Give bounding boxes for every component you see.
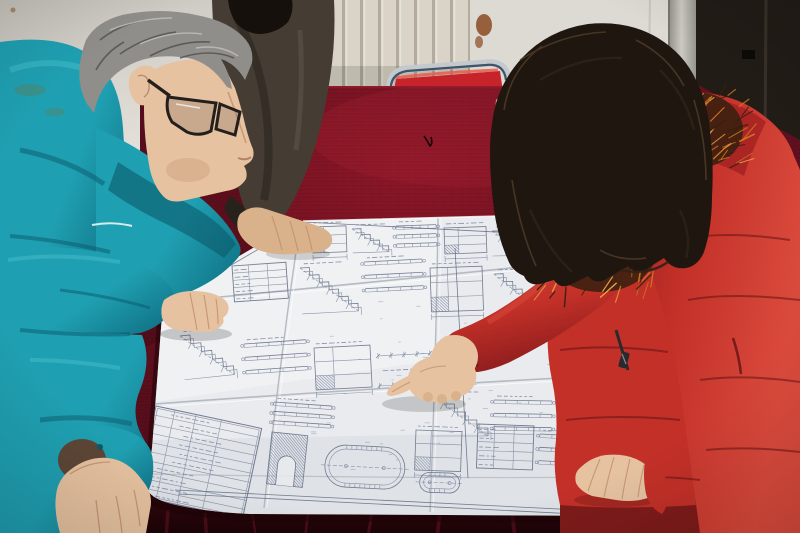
photo-scene — [0, 0, 800, 533]
vignette-overlay — [0, 0, 800, 533]
